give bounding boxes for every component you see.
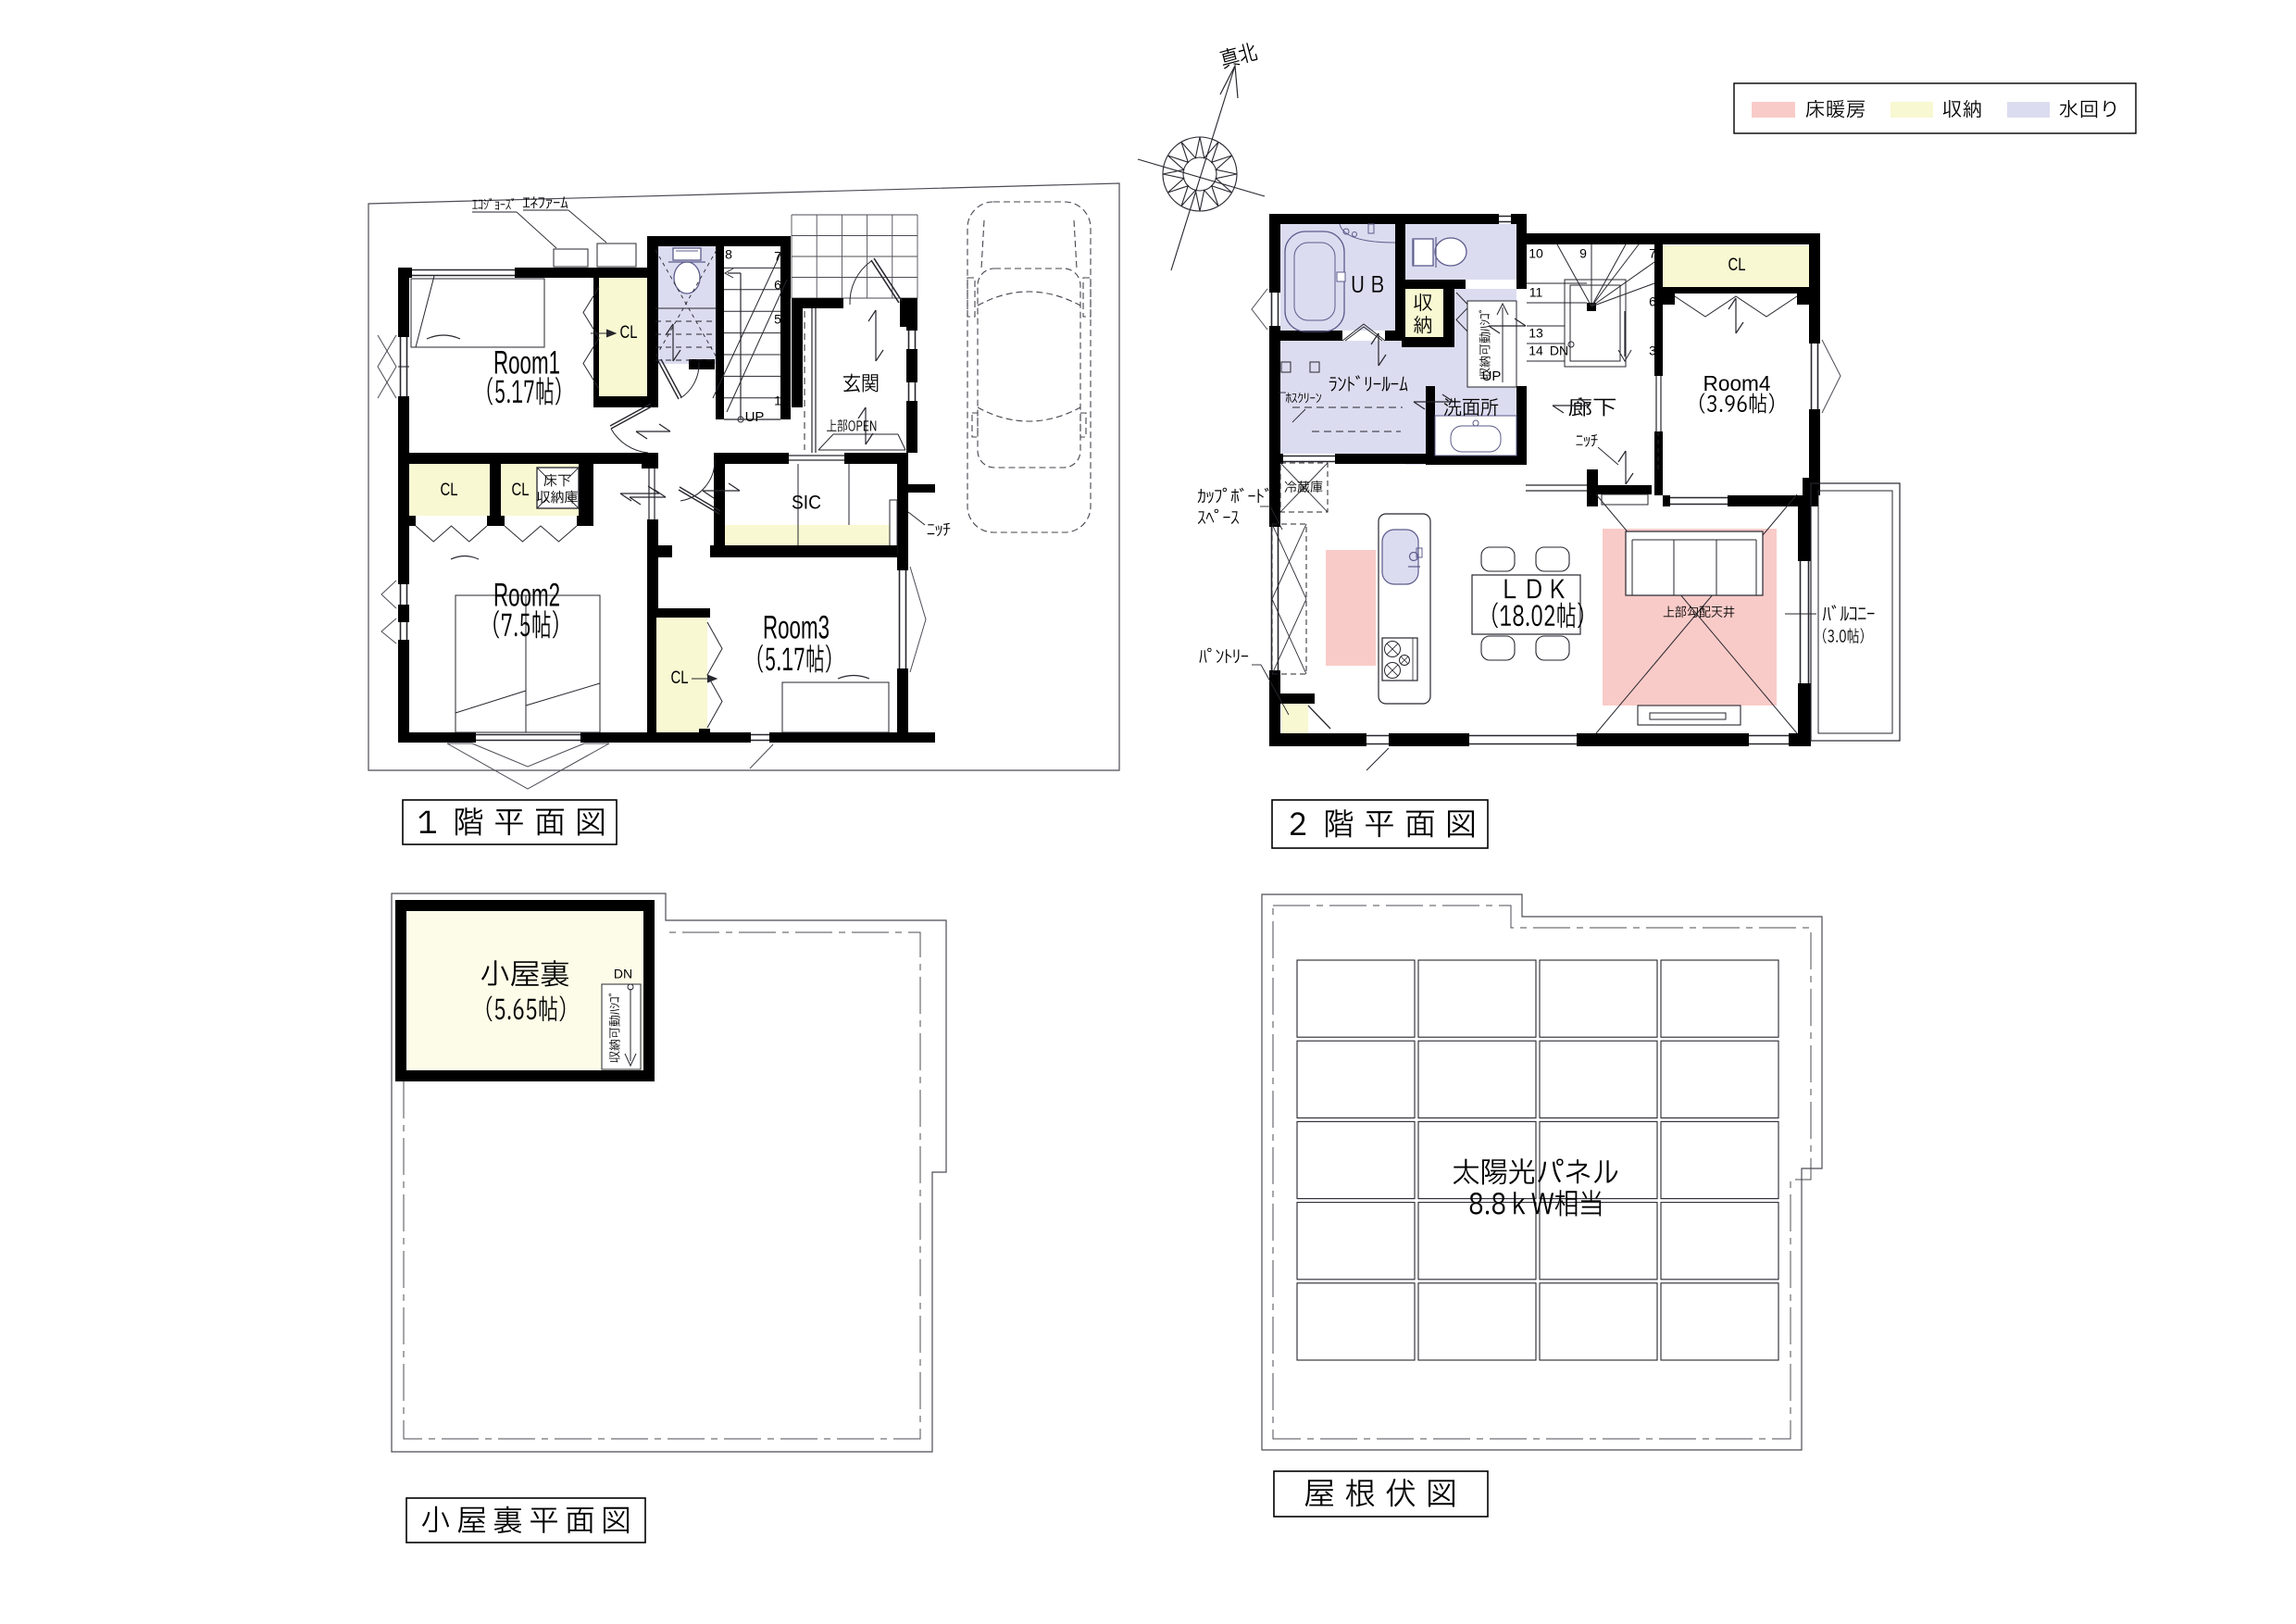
svg-text:Room4: Room4 xyxy=(1703,371,1771,395)
svg-text:6: 6 xyxy=(1649,294,1656,309)
svg-text:13: 13 xyxy=(1529,326,1543,341)
svg-text:14: 14 xyxy=(1529,344,1543,358)
svg-text:9: 9 xyxy=(1579,246,1587,261)
svg-text:Room2: Room2 xyxy=(493,577,560,613)
svg-text:5: 5 xyxy=(774,312,781,327)
svg-text:CL: CL xyxy=(671,668,689,688)
svg-text:6: 6 xyxy=(774,278,781,293)
svg-text:11: 11 xyxy=(1529,285,1543,300)
svg-text:CL: CL xyxy=(441,481,458,500)
svg-text:7: 7 xyxy=(1649,246,1656,261)
svg-text:SIC: SIC xyxy=(792,493,821,514)
svg-text:Room3: Room3 xyxy=(763,609,830,645)
svg-text:10: 10 xyxy=(1529,246,1543,261)
svg-text:Room1: Room1 xyxy=(493,344,560,381)
svg-text:DN: DN xyxy=(614,967,632,981)
svg-text:CL: CL xyxy=(620,323,638,343)
svg-text:3: 3 xyxy=(1649,344,1656,358)
svg-text:7: 7 xyxy=(774,249,781,264)
svg-text:1: 1 xyxy=(774,394,781,408)
svg-text:CL: CL xyxy=(1728,256,1746,275)
svg-text:UP: UP xyxy=(745,409,765,425)
svg-text:UP: UP xyxy=(1482,369,1502,384)
svg-text:8: 8 xyxy=(725,247,732,262)
svg-text:DN: DN xyxy=(1550,344,1568,358)
svg-text:CL: CL xyxy=(512,481,530,500)
